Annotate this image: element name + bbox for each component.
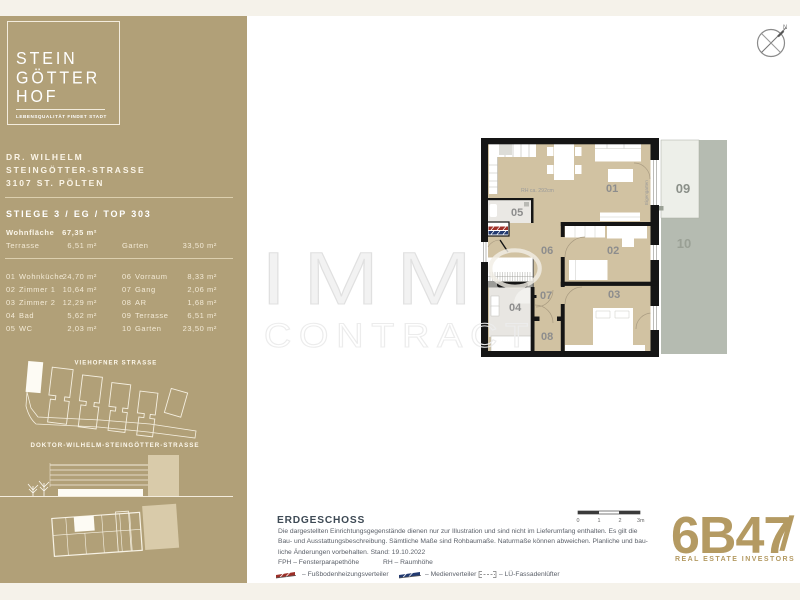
svg-text:3m: 3m [637, 518, 645, 524]
svg-text:DOKTOR-WILHELM-STEINGÖTTER-STR: DOKTOR-WILHELM-STEINGÖTTER-STRASSE [31, 442, 200, 449]
svg-text:09: 09 [676, 181, 690, 196]
svg-text:05: 05 [511, 207, 523, 219]
svg-text:2: 2 [619, 518, 622, 524]
svg-text:VIEHOFNER STRASSE: VIEHOFNER STRASSE [75, 361, 158, 367]
svg-text:0: 0 [577, 518, 580, 524]
svg-text:10: 10 [677, 236, 691, 251]
svg-text:02: 02 [607, 245, 619, 257]
svg-text:RH ca. 292cm: RH ca. 292cm [521, 188, 554, 194]
svg-text:03: 03 [608, 289, 620, 301]
svg-text:06: 06 [541, 245, 553, 257]
svg-text:N: N [783, 25, 787, 31]
svg-text:08: 08 [541, 331, 553, 343]
svg-text:1: 1 [598, 518, 601, 524]
svg-text:04: 04 [509, 302, 522, 314]
svg-text:01: 01 [606, 183, 618, 195]
svg-text:07: 07 [540, 290, 552, 302]
svg-text:Eigengarten: Eigengarten [644, 180, 649, 205]
